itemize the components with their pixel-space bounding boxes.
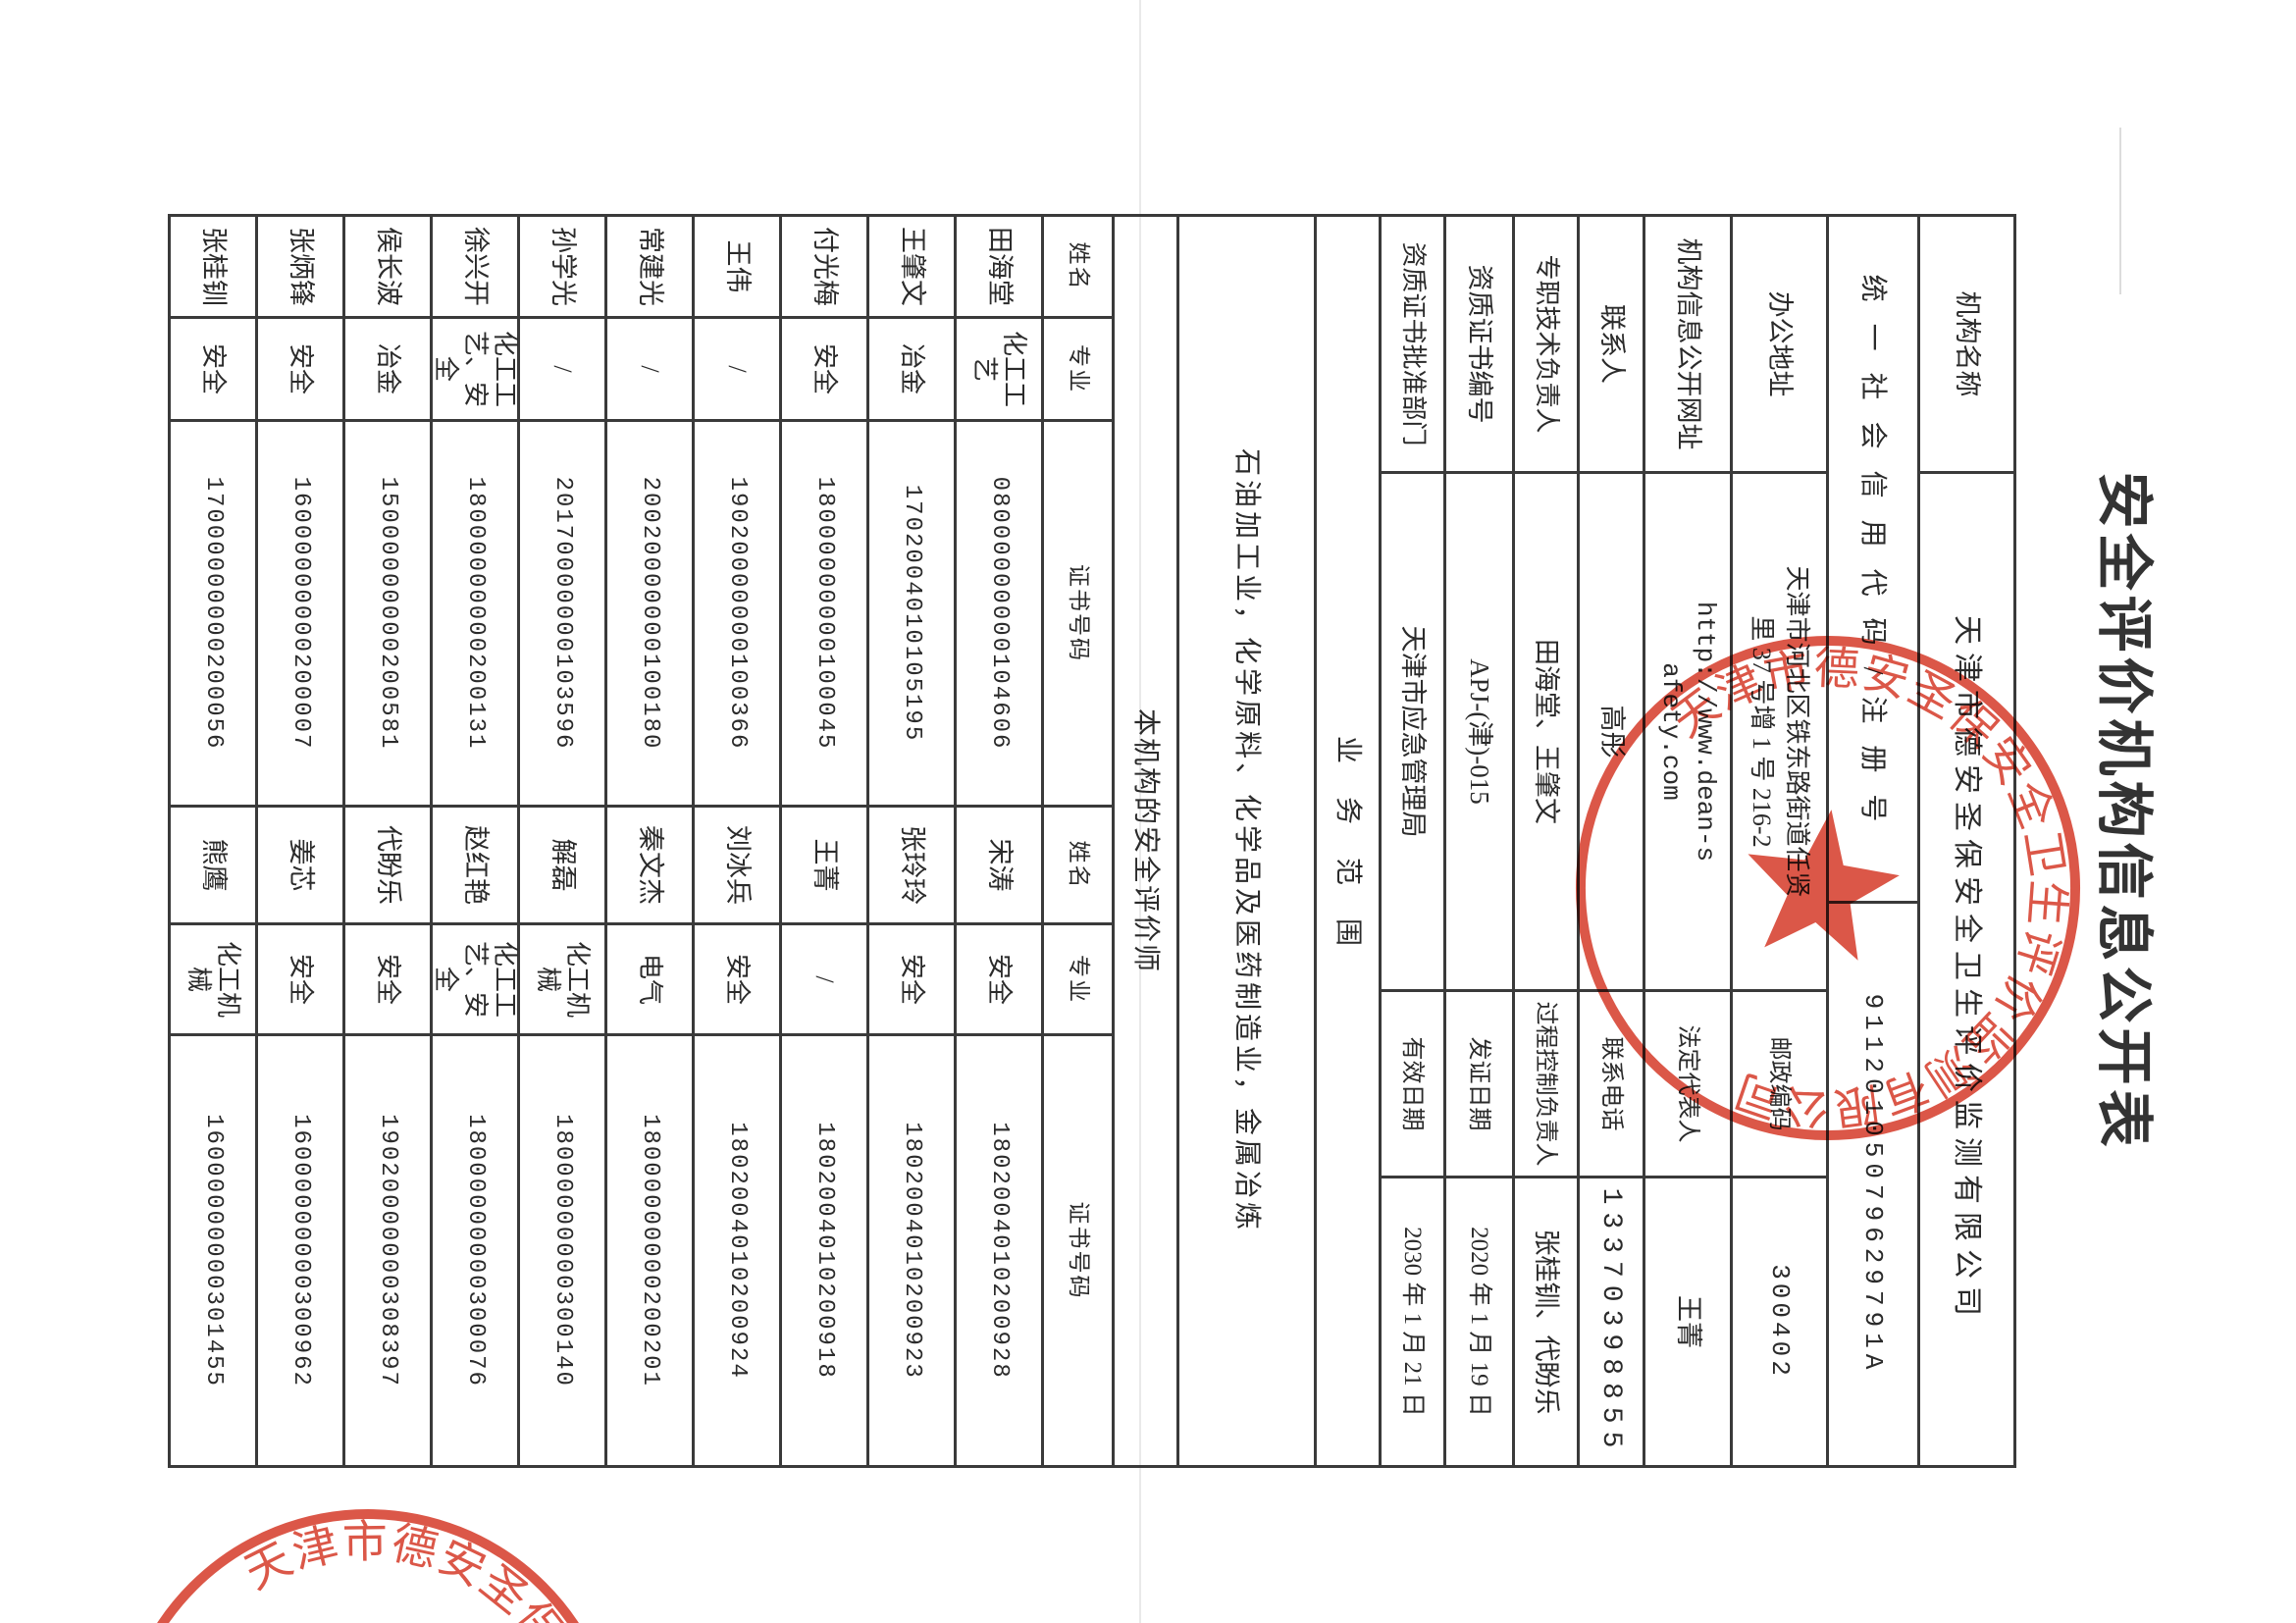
office-address-value: 天津市河北区铁东路街道任贤 里 37 号增 1 号 216-2: [1733, 474, 1826, 992]
evaluator-cert-no: 19020000000100366: [695, 422, 779, 808]
org-name-label: 机构名称: [1920, 217, 2013, 474]
contact-phone-label: 联系电话: [1580, 992, 1643, 1178]
evaluator-row: 田海堂化工工艺08000000000104606宋涛安全180200401020…: [954, 217, 1041, 1465]
business-scope-label: 业务范围: [1317, 217, 1379, 1465]
evaluator-cert-no: 1702004010105195: [869, 422, 954, 808]
evaluator-name: 王伟: [695, 217, 779, 319]
evaluator-name: 解磊: [520, 808, 604, 925]
evaluators-rows: 田海堂化工工艺08000000000104606宋涛安全180200401020…: [171, 217, 1041, 1465]
evaluator-row: 常建光/20020000000100180秦文杰电气18000000000200…: [604, 217, 692, 1465]
evaluator-name: 孙学光: [520, 217, 604, 319]
evaluator-row: 王伟/19020000000100366刘冰兵安全180200401020092…: [692, 217, 779, 1465]
evaluator-row: 侯长波冶金15000000000200581代盼乐安全1902000000030…: [342, 217, 430, 1465]
evaluator-name: 徐兴开: [433, 217, 517, 319]
legal-rep-value: 王菁: [1645, 1178, 1730, 1465]
evaluator-cert-no: 17000000000200056: [171, 422, 255, 808]
evaluator-name: 张桂钏: [171, 217, 255, 319]
evaluator-name: 常建光: [607, 217, 692, 319]
cert-no-value: APJ-(津)-015: [1446, 474, 1512, 992]
evaluator-cert-no: 1802004010200918: [782, 1036, 866, 1465]
evaluator-cert-no: 08000000000104606: [957, 422, 1041, 808]
office-address-line1: 天津市河北区铁东路街道任贤: [1780, 565, 1814, 897]
evaluator-cert-no: 1802004010200924: [695, 1036, 779, 1465]
seal-ring: [121, 1514, 615, 1623]
evaluator-name: 田海堂: [957, 217, 1041, 319]
row-cert-no: 资质证书编号 APJ-(津)-015 发证日期 2020 年 1 月 19 日: [1443, 217, 1512, 1465]
evaluator-name: 付光梅: [782, 217, 866, 319]
evaluator-specialty: /: [695, 319, 779, 422]
evaluator-specialty: 化工工艺: [957, 319, 1041, 422]
postal-code-value: 300402: [1733, 1178, 1826, 1465]
evaluator-row: 王肇文冶金1702004010105195张玲玲安全18020040102009…: [866, 217, 954, 1465]
seal-arc-text: 天津市德安圣保安全卫生评价监测有限公司: [230, 1517, 612, 1623]
evaluator-specialty: 安全: [695, 925, 779, 1036]
business-scope-value: 石油加工业，化学原料、化学品及医药制造业，金属冶炼: [1179, 217, 1314, 1465]
evaluator-specialty: 化工工艺、安全: [433, 925, 517, 1036]
evaluator-name: 王肇文: [869, 217, 954, 319]
row-business-scope-label: 业务范围: [1314, 217, 1379, 1465]
approval-dept-label: 资质证书批准部门: [1382, 217, 1443, 474]
evaluator-specialty: 化工机械: [520, 925, 604, 1036]
info-table: 机构名称 天津市德安圣保安全卫生评价监测有限公司 统一社会信用代码/注册号 91…: [168, 214, 2016, 1468]
evaluator-specialty: /: [520, 319, 604, 422]
evaluator-specialty: 化工机械: [171, 925, 255, 1036]
website-line2: afety.com: [1653, 662, 1688, 800]
tech-lead-label: 专职技术负责人: [1515, 217, 1577, 474]
evaluator-specialty: 安全: [171, 319, 255, 422]
evaluator-cert-no: 16000000000200007: [258, 422, 342, 808]
office-address-label: 办公地址: [1733, 217, 1826, 474]
evaluator-cert-no: 18000000000100045: [782, 422, 866, 808]
evaluator-row: 张桂钏安全17000000000200056熊鹰化工机械160000000003…: [171, 217, 255, 1465]
valid-until-value: 2030 年 1 月 21 日: [1382, 1178, 1443, 1465]
evaluator-specialty: 化工工艺、安全: [433, 319, 517, 422]
evaluator-row: 付光梅安全18000000000100045王菁/180200401020091…: [779, 217, 866, 1465]
evaluator-cert-no: 18000000000200201: [607, 1036, 692, 1465]
website-label: 机构信息公开网址: [1645, 217, 1730, 474]
header-name: 姓名: [1044, 808, 1112, 925]
website-value: http://www.dean-s afety.com: [1645, 474, 1730, 992]
contact-phone-value: 13370398855: [1580, 1178, 1643, 1465]
evaluator-row: 张炳锋安全16000000000200007姜芯安全16000000000300…: [255, 217, 342, 1465]
website-line1: http://www.dean-s: [1688, 602, 1722, 862]
evaluator-cert-no: 20170000000103596: [520, 422, 604, 808]
header-specialty: 专业: [1044, 319, 1112, 422]
evaluator-specialty: 安全: [869, 925, 954, 1036]
header-name: 姓名: [1044, 217, 1112, 319]
issue-date-value: 2020 年 1 月 19 日: [1446, 1178, 1512, 1465]
evaluator-name: 侯长波: [345, 217, 430, 319]
legal-rep-label: 法定代表人: [1645, 992, 1730, 1178]
evaluator-name: 秦文杰: [607, 808, 692, 925]
row-office-address: 办公地址 天津市河北区铁东路街道任贤 里 37 号增 1 号 216-2 邮政编…: [1730, 217, 1826, 1465]
row-website: 机构信息公开网址 http://www.dean-s afety.com 法定代…: [1643, 217, 1730, 1465]
evaluator-specialty: 安全: [345, 925, 430, 1036]
evaluator-specialty: /: [607, 319, 692, 422]
evaluators-header-row: 姓名 专业 证书号码 姓名 专业 证书号码: [1041, 217, 1112, 1465]
contact-person-value: 高彤: [1580, 474, 1643, 992]
evaluator-name: 代盼乐: [345, 808, 430, 925]
credit-code-value: 91120105079629791A: [1829, 904, 1917, 1465]
header-specialty: 专业: [1044, 925, 1112, 1036]
row-org-name: 机构名称 天津市德安圣保安全卫生评价监测有限公司: [1917, 217, 2013, 1465]
evaluator-name: 赵红艳: [433, 808, 517, 925]
page-title: 安全评价机构信息公开表: [2088, 0, 2170, 1623]
org-name-value: 天津市德安圣保安全卫生评价监测有限公司: [1920, 474, 2013, 1465]
evaluator-specialty: 电气: [607, 925, 692, 1036]
header-cert-no: 证书号码: [1044, 1036, 1112, 1465]
evaluator-specialty: /: [782, 925, 866, 1036]
row-contact: 联系人 高彤 联系电话 13370398855: [1577, 217, 1643, 1465]
evaluator-cert-no: 19020000000308397: [345, 1036, 430, 1465]
evaluator-specialty: 安全: [258, 319, 342, 422]
evaluator-cert-no: 18000000000300140: [520, 1036, 604, 1465]
row-leads: 专职技术负责人 田海堂、王肇文 过程控制负责人 张桂钏、代盼乐: [1512, 217, 1577, 1465]
document: 安全评价机构信息公开表 机构名称 天津市德安圣保安全卫生评价监测有限公司 统一社…: [0, 0, 2296, 1623]
evaluator-name: 姜芯: [258, 808, 342, 925]
evaluator-name: 熊鹰: [171, 808, 255, 925]
evaluator-cert-no: 1802004010200923: [869, 1036, 954, 1465]
tech-lead-value: 田海堂、王肇文: [1515, 474, 1577, 992]
evaluator-cert-no: 1802004010200928: [957, 1036, 1041, 1465]
contact-person-label: 联系人: [1580, 217, 1643, 474]
postal-code-label: 邮政编码: [1733, 992, 1826, 1178]
evaluator-cert-no: 16000000000300962: [258, 1036, 342, 1465]
evaluator-specialty: 冶金: [869, 319, 954, 422]
scanned-page: 安全评价机构信息公开表 机构名称 天津市德安圣保安全卫生评价监测有限公司 统一社…: [0, 0, 2296, 1623]
process-lead-value: 张桂钏、代盼乐: [1515, 1178, 1577, 1465]
evaluator-row: 孙学光/20170000000103596解磊化工机械1800000000030…: [517, 217, 604, 1465]
row-credit-code: 统一社会信用代码/注册号 91120105079629791A: [1826, 217, 1917, 1465]
row-business-scope-value: 石油加工业，化学原料、化学品及医药制造业，金属冶炼: [1176, 217, 1314, 1465]
evaluator-specialty: 安全: [258, 925, 342, 1036]
evaluator-specialty: 安全: [782, 319, 866, 422]
valid-until-label: 有效日期: [1382, 992, 1443, 1178]
approval-dept-value: 天津市应急管理局: [1382, 474, 1443, 992]
process-lead-label: 过程控制负责人: [1515, 992, 1577, 1178]
evaluator-cert-no: 15000000000200581: [345, 422, 430, 808]
row-evaluators-section: 本机构的安全评价师: [1112, 217, 1176, 1465]
evaluator-cert-no: 18000000000300076: [433, 1036, 517, 1465]
evaluator-name: 宋涛: [957, 808, 1041, 925]
evaluator-row: 徐兴开化工工艺、安全18000000000200131赵红艳化工工艺、安全180…: [430, 217, 517, 1465]
evaluator-name: 王菁: [782, 808, 866, 925]
cert-no-label: 资质证书编号: [1446, 217, 1512, 474]
evaluator-cert-no: 16000000000301455: [171, 1036, 255, 1465]
seal-text: 天津市德安圣保安全卫生评价监测有限公司: [230, 1517, 612, 1623]
evaluator-name: 张玲玲: [869, 808, 954, 925]
row-approval-dept: 资质证书批准部门 天津市应急管理局 有效日期 2030 年 1 月 21 日: [1379, 217, 1443, 1465]
evaluator-specialty: 冶金: [345, 319, 430, 422]
evaluator-name: 刘冰兵: [695, 808, 779, 925]
credit-code-label: 统一社会信用代码/注册号: [1829, 217, 1917, 904]
office-address-line2: 里 37 号增 1 号 216-2: [1745, 615, 1779, 847]
evaluators-section-title: 本机构的安全评价师: [1115, 217, 1176, 1465]
evaluator-cert-no: 18000000000200131: [433, 422, 517, 808]
header-cert-no: 证书号码: [1044, 422, 1112, 808]
evaluator-name: 张炳锋: [258, 217, 342, 319]
evaluator-specialty: 安全: [957, 925, 1041, 1036]
evaluator-cert-no: 20020000000100180: [607, 422, 692, 808]
issue-date-label: 发证日期: [1446, 992, 1512, 1178]
company-seal-partial: 天津市德安圣保安全卫生评价监测有限公司: [93, 1487, 643, 1623]
